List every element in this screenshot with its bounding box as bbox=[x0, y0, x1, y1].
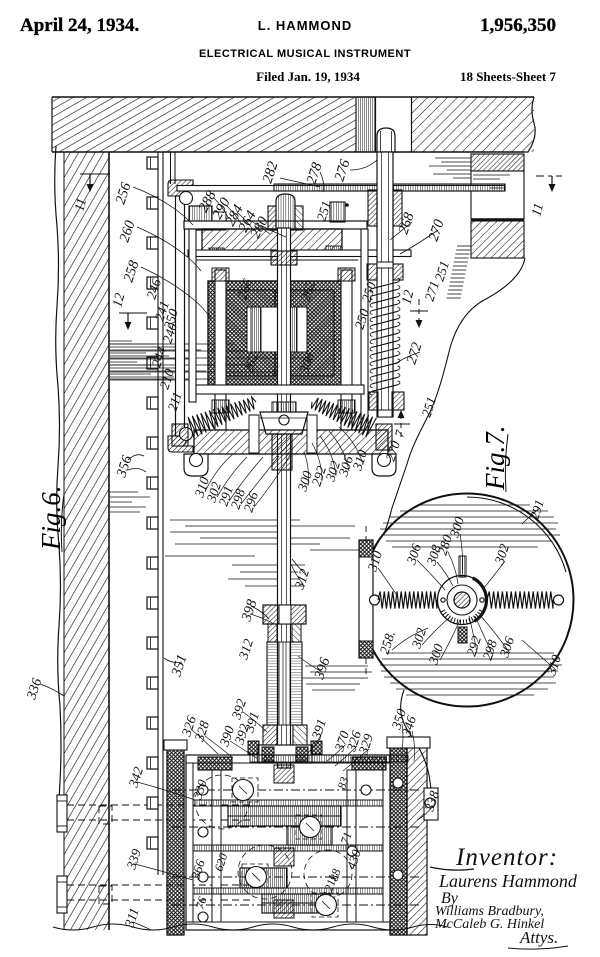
svg-text:250: 250 bbox=[352, 307, 373, 331]
svg-text:12: 12 bbox=[399, 289, 417, 306]
svg-text:210: 210 bbox=[157, 367, 178, 391]
svg-text:April 24, 1934.: April 24, 1934. bbox=[20, 15, 139, 36]
svg-text:11: 11 bbox=[529, 202, 547, 218]
svg-text:260: 260 bbox=[117, 218, 139, 244]
svg-text:12: 12 bbox=[110, 292, 128, 309]
svg-text:356: 356 bbox=[113, 453, 135, 480]
svg-text:ELECTRICAL MUSICAL INSTRUMENT: ELECTRICAL MUSICAL INSTRUMENT bbox=[199, 48, 411, 60]
svg-text:L. HAMMOND: L. HAMMOND bbox=[258, 18, 353, 33]
svg-text:76: 76 bbox=[193, 895, 210, 911]
svg-text:312: 312 bbox=[235, 637, 256, 662]
svg-text:Attys.: Attys. bbox=[519, 928, 558, 947]
svg-text:336: 336 bbox=[24, 677, 45, 703]
svg-text:Laurens Hammond: Laurens Hammond bbox=[438, 871, 578, 891]
svg-text:1,956,350: 1,956,350 bbox=[480, 15, 556, 36]
svg-text:391: 391 bbox=[308, 717, 329, 742]
svg-text:256: 256 bbox=[113, 180, 135, 206]
svg-text:7: 7 bbox=[391, 428, 407, 439]
svg-text:272: 272 bbox=[404, 341, 426, 367]
svg-text:278: 278 bbox=[304, 160, 326, 186]
svg-text:311: 311 bbox=[121, 906, 142, 930]
svg-text:282: 282 bbox=[260, 160, 282, 186]
svg-text:398: 398 bbox=[238, 597, 260, 624]
svg-text:270: 270 bbox=[426, 217, 448, 243]
svg-text:18 Sheets-Sheet 7: 18 Sheets-Sheet 7 bbox=[460, 69, 557, 84]
svg-text:Filed Jan. 19, 1934: Filed Jan. 19, 1934 bbox=[256, 69, 360, 84]
svg-text:291: 291 bbox=[527, 498, 547, 521]
svg-text:339: 339 bbox=[123, 847, 144, 872]
svg-text:271: 271 bbox=[422, 279, 443, 303]
svg-text:1211: 1211 bbox=[320, 873, 340, 899]
svg-text:251: 251 bbox=[432, 259, 453, 283]
svg-text:342: 342 bbox=[125, 765, 146, 790]
svg-text:Inventor:: Inventor: bbox=[455, 844, 558, 871]
svg-text:258: 258 bbox=[121, 258, 143, 284]
svg-text:351: 351 bbox=[168, 653, 190, 680]
